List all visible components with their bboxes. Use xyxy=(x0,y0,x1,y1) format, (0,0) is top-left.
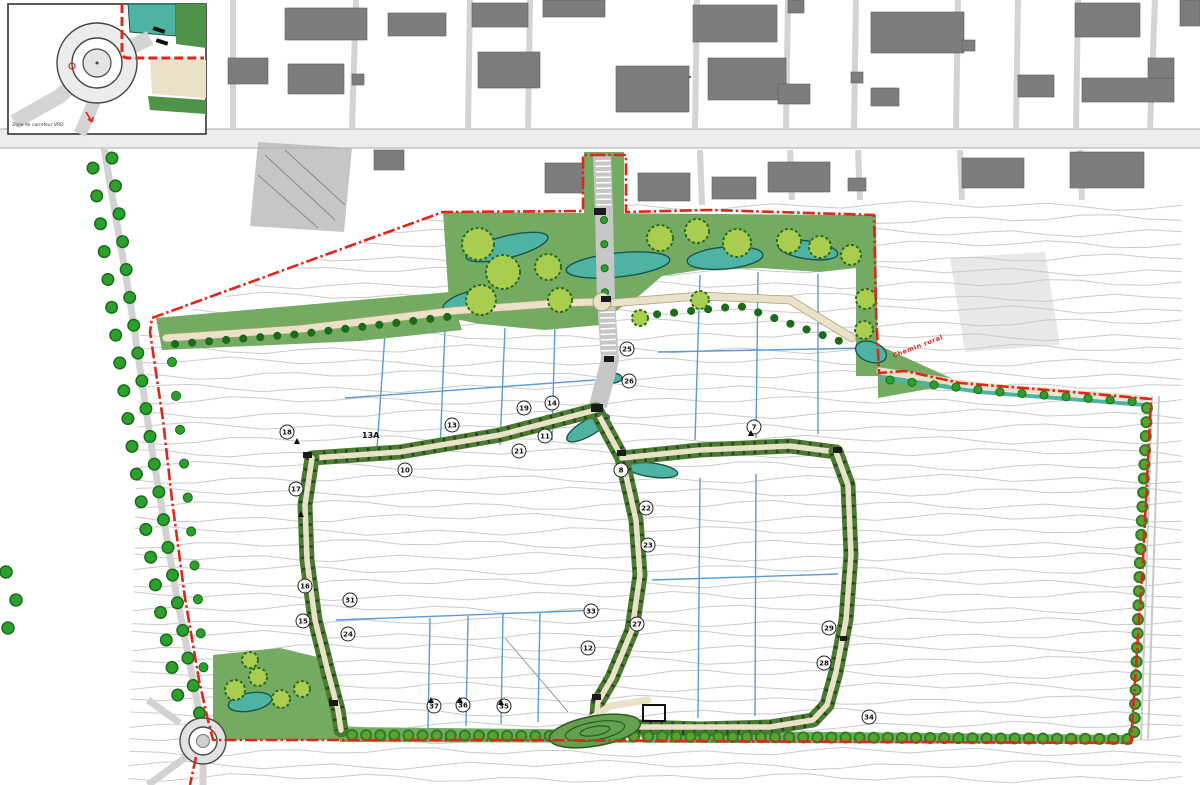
ref-marker-12: 12 xyxy=(581,641,596,656)
triangle-mark: ▲ xyxy=(748,429,754,437)
ref-marker-23: 23 xyxy=(641,538,656,553)
site-plan-map: Chemin rural 13A Zone de carrefour VRD 2… xyxy=(0,0,1200,785)
ref-marker-29: 29 xyxy=(822,621,837,636)
technical-structure xyxy=(643,705,665,721)
ref-marker-19: 19 xyxy=(517,401,532,416)
ref-marker-33: 33 xyxy=(584,604,599,619)
ref-marker-24: 24 xyxy=(341,627,356,642)
inset-roundabout-detail xyxy=(8,4,206,134)
green-areas xyxy=(156,152,1130,744)
lot-number-label: 13A xyxy=(362,431,379,440)
inset-caption: Zone de carrefour VRD xyxy=(12,123,64,128)
ref-marker-15: 15 xyxy=(296,614,311,629)
ref-marker-28: 28 xyxy=(817,656,832,671)
ref-marker-17: 17 xyxy=(289,482,304,497)
ref-marker-34: 34 xyxy=(862,710,877,725)
ref-marker-16: 16 xyxy=(298,579,313,594)
ref-marker-31: 31 xyxy=(343,593,358,608)
ref-marker-18: 18 xyxy=(280,425,295,440)
ref-marker-26: 26 xyxy=(622,374,637,389)
triangle-mark: ▲ xyxy=(457,696,463,704)
landscaped-mound xyxy=(547,708,643,754)
ref-marker-27: 27 xyxy=(630,617,645,632)
ref-marker-13: 13 xyxy=(445,418,460,433)
triangle-mark: ▲ xyxy=(498,698,504,706)
ref-marker-8: 8 xyxy=(614,463,629,478)
triangle-mark: ▲ xyxy=(294,437,300,445)
ref-marker-25: 25 xyxy=(620,342,635,357)
building-footprints xyxy=(228,0,1200,201)
triangle-mark: ▲ xyxy=(428,696,434,704)
ref-marker-11: 11 xyxy=(538,429,553,444)
ref-marker-22: 22 xyxy=(639,501,654,516)
ref-marker-14: 14 xyxy=(545,396,560,411)
triangle-mark: ▲ xyxy=(298,510,304,518)
site-plan-drawing xyxy=(0,0,1200,785)
ref-marker-10: 10 xyxy=(398,463,413,478)
ref-marker-21: 21 xyxy=(512,444,527,459)
